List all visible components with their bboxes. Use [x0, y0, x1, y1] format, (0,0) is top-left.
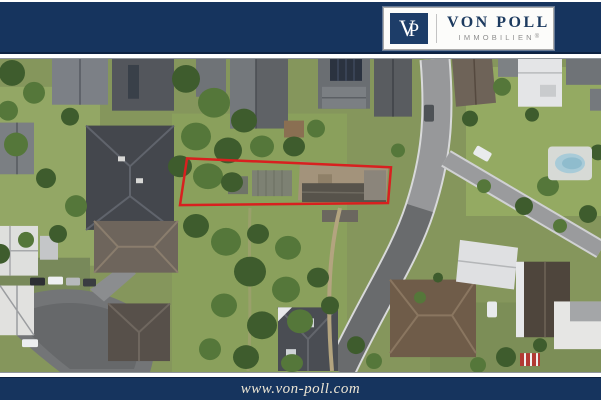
header-bar: VP VON POLL IMMOBILIEN®: [0, 2, 601, 54]
website-url: www.von-poll.com: [241, 381, 360, 398]
monogram-p: P: [409, 21, 420, 40]
brand-name: VON POLL: [447, 15, 550, 31]
footer-bar: www.von-poll.com: [0, 377, 601, 400]
brochure-page: VP VON POLL IMMOBILIEN®: [0, 0, 601, 400]
aerial-photo: [0, 58, 601, 373]
brand-subtitle-text: IMMOBILIEN: [459, 33, 535, 42]
vp-monogram-icon: VP: [390, 13, 428, 44]
logo-text: VON POLL IMMOBILIEN®: [445, 15, 550, 42]
registered-mark: ®: [535, 34, 539, 40]
swimming-pool: [548, 146, 592, 180]
von-poll-logo: VP VON POLL IMMOBILIEN®: [383, 7, 554, 50]
aerial-scene: [0, 59, 601, 372]
logo-divider: [436, 14, 437, 43]
brand-subtitle: IMMOBILIEN®: [448, 34, 550, 42]
